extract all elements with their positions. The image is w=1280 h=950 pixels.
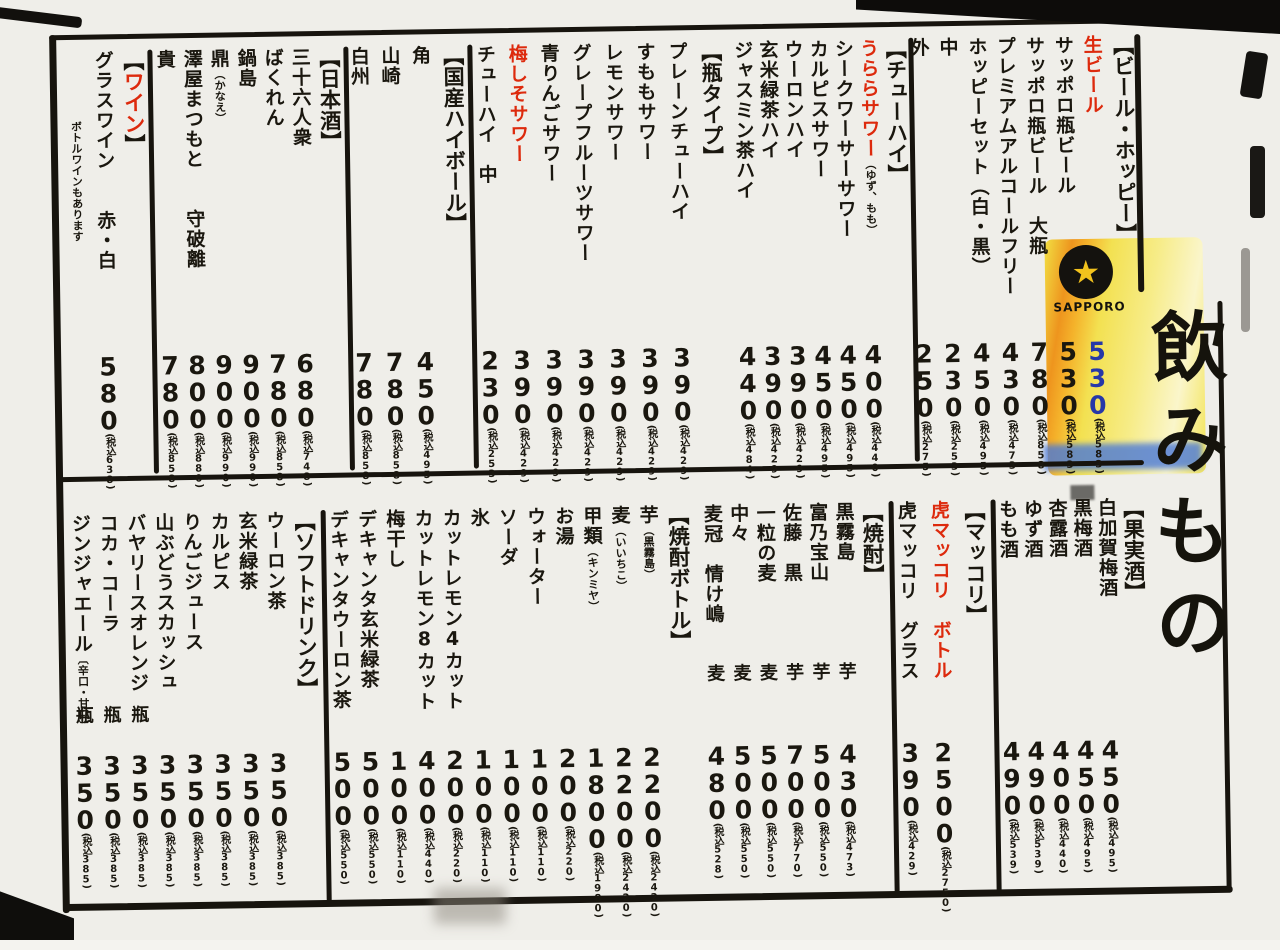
item-pricebox: 500(税込550) bbox=[756, 741, 783, 878]
item-type-marker: 芋 bbox=[837, 662, 855, 680]
item-price: 350 bbox=[97, 751, 127, 832]
item-name: 梅干し bbox=[384, 509, 405, 569]
item-tax-price: (税込539) bbox=[1007, 818, 1019, 873]
item-pricebox: 900(税込990) bbox=[211, 350, 238, 487]
item-tax-price: (税込550) bbox=[366, 828, 378, 883]
section-header-label: 【焼酎ボトル】 bbox=[666, 504, 691, 651]
item-pricebox: 530(税込583) bbox=[1084, 337, 1111, 474]
item-tax-price: (税込429) bbox=[518, 427, 530, 482]
item-price: 500 bbox=[356, 747, 386, 828]
item-price: 230 bbox=[475, 346, 505, 427]
item-tax-price: (税込539) bbox=[1032, 818, 1044, 873]
item-tax-price: (税込2420) bbox=[620, 851, 632, 916]
item-name: デキャンタ玄米緑茶 bbox=[355, 509, 378, 689]
item-tax-price: (税込275) bbox=[920, 420, 932, 475]
item-pricebox: 450(税込495) bbox=[968, 338, 995, 475]
item-pricebox: 780(税込858) bbox=[1026, 338, 1053, 475]
item-name: 中々 bbox=[728, 503, 749, 543]
section-header-label: 【焼酎】 bbox=[860, 501, 884, 585]
item-pricebox: 390(税込429) bbox=[509, 346, 536, 483]
item-price: 390 bbox=[667, 343, 697, 424]
item-pricebox: 2200(税込2420) bbox=[611, 743, 638, 917]
item-type-marker: 瓶 bbox=[101, 705, 119, 723]
item-pricebox: 900(税込990) bbox=[238, 350, 265, 487]
menu-item: 角450(税込495) bbox=[407, 45, 440, 469]
item-name: りんごジュース bbox=[180, 512, 203, 652]
item-name: 青りんごサワー bbox=[538, 43, 561, 183]
scan-artifact bbox=[1250, 146, 1265, 218]
item-name: 一粒の麦 bbox=[754, 503, 776, 583]
menu-item: グラスワイン 赤・白580(税込638) bbox=[89, 50, 122, 474]
item-tax-price: (税込495) bbox=[844, 422, 856, 477]
section-header-label: 【マッコリ】 bbox=[962, 500, 987, 626]
item-type-marker: 瓶 bbox=[74, 706, 92, 724]
item-price: 430 bbox=[833, 740, 863, 821]
section-header-label: 【瓶タイプ】 bbox=[699, 41, 724, 167]
item-tax-price: (税込385) bbox=[80, 833, 92, 888]
item-name: コカ・コーラ bbox=[97, 513, 119, 633]
item-tax-price: (税込473) bbox=[1006, 419, 1018, 474]
item-price: 390 bbox=[896, 739, 926, 820]
item-price: 780 bbox=[1025, 337, 1055, 418]
item-tax-price: (税込550) bbox=[817, 821, 829, 876]
item-price: 490 bbox=[997, 737, 1027, 818]
item-pricebox: 490(税込539) bbox=[998, 737, 1025, 874]
menu-item: カットレモン4カット200(税込220) bbox=[437, 508, 469, 902]
menu-item: 山崎780(税込858) bbox=[376, 46, 409, 470]
item-name: 佐藤 黒 bbox=[780, 502, 802, 582]
item-name: うららサワー（ゆず、もも） bbox=[857, 38, 881, 235]
item-name: 富乃宝山 bbox=[807, 502, 829, 582]
item-name: カットレモン4カット bbox=[440, 508, 464, 711]
section-shochu-bottle: 【焼酎ボトル】芋（黒霧島）2200(税込2420)麦（いいちこ）2200(税込2… bbox=[325, 504, 699, 904]
item-pricebox: 450(税込495) bbox=[412, 347, 439, 484]
item-pricebox: 200(税込220) bbox=[442, 746, 469, 883]
item-price: 350 bbox=[264, 748, 294, 829]
item-tax-price: (税込858) bbox=[166, 432, 178, 487]
menu-item: ボトルワインもあります bbox=[61, 51, 94, 475]
item-price: 350 bbox=[153, 750, 183, 831]
item-price: 100 bbox=[525, 744, 555, 825]
section-header-label: 【果実酒】 bbox=[1121, 497, 1145, 602]
item-price: 350 bbox=[181, 750, 211, 831]
item-tax-price: (税込110) bbox=[394, 828, 406, 883]
item-name: 鍋島 bbox=[235, 48, 256, 88]
item-pricebox: 450(税込495) bbox=[1097, 735, 1124, 872]
item-tax-price: (税込429) bbox=[768, 423, 780, 478]
item-pricebox: 2500(税込2750) bbox=[930, 738, 957, 912]
item-tax-price: (税込858) bbox=[274, 431, 286, 486]
section-header-shochu-bottle: 【焼酎ボトル】 bbox=[662, 504, 698, 898]
item-tax-price: (税込429) bbox=[582, 426, 594, 481]
item-name: ソーダ bbox=[496, 507, 517, 567]
section-header-label: 【ビール・ホッピー】 bbox=[1111, 34, 1137, 244]
item-price: 350 bbox=[70, 752, 100, 833]
item-name: サッポロ瓶ビール bbox=[1052, 35, 1075, 195]
menu-title: 飲みもの bbox=[1144, 307, 1226, 676]
section-header-bin-type: 【瓶タイプ】 bbox=[695, 41, 732, 465]
item-name: 氷 bbox=[468, 507, 489, 527]
item-pricebox: 350(税込385) bbox=[210, 749, 237, 886]
item-pricebox: 780(税込858) bbox=[381, 348, 408, 485]
item-tax-price: (税込770) bbox=[791, 822, 803, 877]
item-pricebox: 500(税込550) bbox=[329, 748, 356, 885]
item-pricebox: 500(税込550) bbox=[357, 747, 384, 884]
item-name: 玄米緑茶ハイ bbox=[757, 40, 779, 160]
item-name: 芋（黒霧島） bbox=[637, 505, 659, 580]
menu-item: コカ・コーラ瓶350(税込385) bbox=[94, 513, 126, 907]
item-pricebox: 450(税込495) bbox=[810, 341, 837, 478]
item-name: 玄米緑茶 bbox=[236, 511, 258, 591]
section-header-makgeolli: 【マッコリ】 bbox=[959, 500, 995, 894]
item-price: 500 bbox=[728, 741, 758, 822]
section-makgeolli: 【マッコリ】虎マッコリ ボトル2500(税込2750)虎マッコリ グラス390(… bbox=[893, 500, 995, 895]
item-tax-price: (税込528) bbox=[712, 823, 724, 878]
item-type-marker: 瓶 bbox=[129, 705, 147, 723]
item-type-marker: 麦 bbox=[705, 664, 723, 682]
item-tax-price: (税込583) bbox=[1093, 418, 1105, 473]
menu-item: ウーロン茶350(税込385) bbox=[261, 511, 293, 905]
item-pricebox: 100(税込110) bbox=[498, 745, 525, 882]
item-tax-price: (税込253) bbox=[948, 420, 960, 475]
item-tax-price: (税込583) bbox=[1064, 418, 1076, 473]
item-name: 白加賀梅酒 bbox=[1095, 498, 1117, 598]
item-pricebox: 350(税込385) bbox=[238, 749, 265, 886]
item-name: バヤリースオレンジ bbox=[125, 513, 148, 693]
item-tax-price: (税込385) bbox=[274, 830, 286, 885]
item-price: 200 bbox=[553, 744, 583, 825]
item-pricebox: 2200(税込2420) bbox=[639, 743, 666, 917]
item-pricebox: 350(税込385) bbox=[182, 750, 209, 887]
item-name: ホッピーセット（白・黒） bbox=[966, 37, 990, 277]
menu-item: 甲類（キンミヤ）1800(税込1980) bbox=[578, 506, 610, 900]
item-tax-price: (税込495) bbox=[1106, 817, 1118, 872]
item-price: 500 bbox=[754, 741, 784, 822]
item-price: 580 bbox=[93, 352, 123, 433]
item-tax-price: (税込550) bbox=[338, 829, 350, 884]
item-price: 530 bbox=[1082, 337, 1112, 418]
item-pricebox: 200(税込220) bbox=[554, 744, 581, 881]
item-pricebox: 390(税込429) bbox=[759, 342, 786, 479]
item-price: 700 bbox=[781, 740, 811, 821]
section-beer-hoppy: 【ビール・ホッピー】生ビール530(税込583)サッポロ瓶ビール530(税込58… bbox=[905, 34, 1144, 462]
section-shochu: 【焼酎】黒霧島芋430(税込473)富乃宝山芋500(税込550)佐藤 黒芋70… bbox=[699, 501, 893, 898]
item-name: カットレモン8カット bbox=[412, 508, 436, 711]
item-type-marker: 麦 bbox=[758, 663, 776, 681]
item-name: ウーロン茶 bbox=[264, 511, 286, 611]
item-pricebox: 350(税込385) bbox=[265, 749, 292, 886]
item-price: 350 bbox=[208, 749, 238, 830]
item-pricebox: 100(税込110) bbox=[385, 747, 412, 884]
menu-item: 青りんごサワー390(税込429) bbox=[535, 43, 568, 467]
item-tax-price: (税込748) bbox=[301, 430, 313, 485]
item-name: 角 bbox=[409, 45, 430, 65]
item-name: ウーロンハイ bbox=[782, 39, 804, 159]
item-tax-price: (税込495) bbox=[1081, 817, 1093, 872]
item-pricebox: 480(税込528) bbox=[703, 742, 730, 879]
item-name: ボトルワインもあります bbox=[70, 121, 84, 242]
item-type-marker: 芋 bbox=[810, 662, 828, 680]
item-price: 2500 bbox=[929, 738, 960, 846]
item-price: 450 bbox=[411, 347, 441, 428]
item-price: 800 bbox=[182, 351, 212, 432]
item-pricebox: 390(税込429) bbox=[785, 341, 812, 478]
item-type-marker: 麦 bbox=[731, 663, 749, 681]
menu-item: 白州780(税込858) bbox=[345, 46, 378, 470]
item-name: 中 bbox=[937, 37, 958, 57]
menu-item: ソーダ100(税込110) bbox=[494, 507, 526, 901]
section-soft-drink: 【ソフトドリンク】ウーロン茶350(税込385)玄米緑茶350(税込385)カル… bbox=[67, 510, 325, 908]
item-pricebox: 400(税込440) bbox=[1048, 736, 1075, 873]
item-name: カルピス bbox=[208, 511, 230, 591]
item-tax-price: (税込990) bbox=[220, 431, 232, 486]
item-tax-price: (税込2750) bbox=[939, 846, 951, 911]
item-tax-price: (税込385) bbox=[246, 830, 258, 885]
section-header-label: 【チューハイ】 bbox=[883, 38, 908, 185]
item-name: ゆず酒 bbox=[1021, 499, 1042, 559]
item-name: 黒梅酒 bbox=[1071, 498, 1092, 558]
section-header-shochu: 【焼酎】 bbox=[856, 501, 892, 895]
item-name: 甲類（キンミヤ） bbox=[581, 506, 603, 612]
section-header-label: 【ソフトドリンク】 bbox=[292, 510, 318, 699]
item-tax-price: (税込1980) bbox=[592, 852, 604, 917]
menu-item: カルピス350(税込385) bbox=[205, 511, 237, 905]
item-name: チューハイ 中 bbox=[474, 44, 497, 184]
item-pricebox: 230(税込253) bbox=[477, 346, 504, 483]
item-tax-price: (税込2420) bbox=[648, 851, 660, 916]
item-pricebox: 450(税込495) bbox=[1072, 736, 1099, 873]
item-tax-price: (税込495) bbox=[977, 420, 989, 475]
item-tax-price: (税込429) bbox=[646, 425, 658, 480]
item-pricebox: 400(税込440) bbox=[414, 746, 441, 883]
item-price: 350 bbox=[236, 749, 266, 830]
item-tax-price: (税込429) bbox=[906, 820, 918, 875]
item-price: 1800 bbox=[581, 744, 612, 852]
item-name: 生ビール bbox=[1081, 35, 1103, 115]
item-pricebox: 440(税込484) bbox=[734, 342, 761, 479]
item-type-marker: 芋 bbox=[784, 662, 802, 680]
menu-item: チューハイ 中230(税込253) bbox=[471, 44, 504, 468]
item-name: レモンサワー bbox=[602, 42, 624, 162]
item-price: 780 bbox=[349, 348, 379, 429]
item-tax-price: (税込253) bbox=[486, 427, 498, 482]
item-tax-price: (税込429) bbox=[550, 426, 562, 481]
item-price: 500 bbox=[807, 740, 837, 821]
item-pricebox: 350(税込385) bbox=[71, 752, 98, 889]
item-pricebox: 390(税込429) bbox=[637, 344, 664, 481]
section-nihonshu: 【日本酒】三十六人衆680(税込748)ばくれん780(税込858)鍋島900(… bbox=[151, 47, 350, 474]
item-name: サッポロ瓶ビール 大瓶 bbox=[1023, 36, 1047, 256]
item-price: 390 bbox=[571, 345, 601, 426]
item-price: 350 bbox=[125, 751, 155, 832]
section-bin-type: 【瓶タイプ】プレーンチューハイ390(税込429)すももサワー390(税込429… bbox=[471, 41, 732, 469]
item-price: 2200 bbox=[637, 743, 668, 851]
menu-item: 玄米緑茶350(税込385) bbox=[233, 511, 265, 905]
item-price: 390 bbox=[539, 345, 569, 426]
item-tax-price: (税込429) bbox=[678, 424, 690, 479]
item-tax-price: (税込385) bbox=[135, 832, 147, 887]
item-price: 100 bbox=[496, 745, 526, 826]
item-price: 780 bbox=[380, 348, 410, 429]
section-header-label: 【国産ハイボール】 bbox=[441, 45, 467, 234]
item-tax-price: (税込385) bbox=[163, 831, 175, 886]
item-pricebox: 430(税込473) bbox=[835, 740, 862, 877]
item-name: デキャンタウーロン茶 bbox=[327, 510, 351, 710]
item-pricebox: 1800(税込1980) bbox=[582, 744, 609, 918]
item-pricebox: 800(税込880) bbox=[184, 351, 211, 488]
section-kokusan-highball: 【国産ハイボール】角450(税込495)山崎780(税込858)白州780(税込… bbox=[345, 45, 474, 471]
section-chuhai: 【チューハイ】うららサワー（ゆず、もも）400(税込440)シークワーサーサワー… bbox=[729, 38, 916, 465]
menu-item: デキャンタウーロン茶500(税込550) bbox=[325, 510, 357, 904]
item-price: 480 bbox=[702, 742, 732, 823]
item-price: 200 bbox=[440, 746, 470, 827]
item-tax-price: (税込550) bbox=[738, 822, 750, 877]
item-pricebox: 390(税込429) bbox=[897, 739, 924, 876]
item-pricebox: 500(税込550) bbox=[729, 741, 756, 878]
item-pricebox: 530(税込583) bbox=[1055, 337, 1082, 474]
item-pricebox: 680(税込748) bbox=[292, 349, 319, 486]
item-tax-price: (税込440) bbox=[869, 421, 881, 476]
item-pricebox: 450(税込495) bbox=[835, 341, 862, 478]
menu-item: 梅しそサワー390(税込429) bbox=[503, 44, 536, 468]
item-name: すももサワー bbox=[634, 42, 656, 162]
item-name: プレーンチューハイ bbox=[666, 41, 689, 221]
item-pricebox: 390(税込429) bbox=[669, 343, 696, 480]
item-name: 澤屋まつもと 守破離 bbox=[181, 49, 205, 269]
item-name: お湯 bbox=[553, 506, 574, 546]
item-tax-price: (税込429) bbox=[614, 425, 626, 480]
item-name: 黒霧島 bbox=[833, 502, 854, 562]
item-name: 梅しそサワー bbox=[506, 44, 528, 164]
item-name: カルピスサワー bbox=[807, 39, 830, 179]
item-price: 530 bbox=[1053, 337, 1083, 418]
item-pricebox: 700(税込770) bbox=[782, 740, 809, 877]
item-pricebox: 580(税込638) bbox=[95, 352, 122, 489]
item-tax-price: (税込385) bbox=[191, 831, 203, 886]
item-pricebox: 350(税込385) bbox=[99, 751, 126, 888]
item-name: 麦冠 情け嶋 bbox=[701, 504, 723, 624]
item-price: 390 bbox=[507, 346, 537, 427]
item-tax-price: (税込858) bbox=[390, 429, 402, 484]
item-price: 900 bbox=[236, 350, 266, 431]
item-name: 山ぶどうスカッシュ bbox=[153, 512, 176, 692]
menu-item: デキャンタ玄米緑茶500(税込550) bbox=[353, 509, 385, 903]
item-tax-price: (税込858) bbox=[1035, 419, 1047, 474]
item-name: ジャスミン茶ハイ bbox=[732, 40, 755, 200]
item-tax-price: (税込110) bbox=[507, 826, 519, 881]
item-price: 230 bbox=[938, 339, 968, 420]
menu-item: プレーンチューハイ390(税込429) bbox=[663, 41, 696, 465]
menu-item: 虎マッコリ ボトル2500(税込2750) bbox=[926, 500, 958, 894]
item-name: 三十六人衆 bbox=[289, 47, 311, 147]
menu-item: りんごジュース350(税込385) bbox=[178, 512, 210, 906]
menu-item: ジンジャエール〔辛口・甘口〕瓶350(税込385) bbox=[67, 514, 99, 908]
item-tax-price: (税込385) bbox=[219, 830, 231, 885]
item-name: ばくれん bbox=[262, 48, 284, 128]
item-tax-price: (税込110) bbox=[535, 826, 547, 881]
item-price: 450 bbox=[967, 338, 997, 419]
item-tax-price: (税込110) bbox=[479, 826, 491, 881]
item-pricebox: 390(税込429) bbox=[573, 345, 600, 482]
item-pricebox: 780(税込858) bbox=[351, 348, 378, 485]
menu-item: 山ぶどうスカッシュ350(税込385) bbox=[150, 512, 182, 906]
item-pricebox: 430(税込473) bbox=[997, 338, 1024, 475]
item-price: 780 bbox=[155, 351, 185, 432]
menu-item: ウォーター100(税込110) bbox=[522, 506, 554, 900]
item-price: 390 bbox=[603, 344, 633, 425]
item-tax-price: (税込858) bbox=[360, 429, 372, 484]
item-pricebox: 390(税込429) bbox=[541, 345, 568, 482]
menu-item: 氷100(税込110) bbox=[465, 507, 497, 901]
item-pricebox: 100(税込110) bbox=[526, 744, 553, 881]
item-tax-price: (税込440) bbox=[422, 827, 434, 882]
menu-item: お湯200(税込220) bbox=[550, 506, 582, 900]
item-price: 430 bbox=[996, 338, 1026, 419]
item-price: 680 bbox=[290, 349, 320, 430]
item-tax-price: (税込484) bbox=[743, 423, 755, 478]
menu-board: ★ SAPPORO 飲みもの 【ビール・ホッピー】生ビール530(税込583)サ… bbox=[0, 0, 1280, 950]
scanned-menu-page: ★ SAPPORO 飲みもの 【ビール・ホッピー】生ビール530(税込583)サ… bbox=[0, 0, 1280, 940]
section-header-label: 【ワイン】 bbox=[121, 50, 145, 155]
menu-item: 梅干し100(税込110) bbox=[381, 509, 413, 903]
item-tax-price: (税込495) bbox=[819, 422, 831, 477]
item-price: 100 bbox=[384, 747, 414, 828]
item-pricebox: 100(税込110) bbox=[470, 745, 497, 882]
item-name: 麦（いいちこ） bbox=[609, 505, 631, 591]
item-tax-price: (税込495) bbox=[421, 428, 433, 483]
item-tax-price: (税込440) bbox=[1056, 817, 1068, 872]
item-pricebox: 230(税込253) bbox=[940, 339, 967, 476]
item-pricebox: 780(税込858) bbox=[157, 351, 184, 488]
item-pricebox: 400(税込440) bbox=[860, 340, 887, 477]
item-pricebox: 490(税込539) bbox=[1023, 737, 1050, 874]
item-pricebox: 390(税込429) bbox=[605, 344, 632, 481]
item-pricebox: 780(税込858) bbox=[265, 349, 292, 486]
item-name: シークワーサーサワー bbox=[832, 39, 856, 239]
item-name: 白州 bbox=[348, 46, 369, 86]
section-wine: 【ワイン】グラスワイン 赤・白580(税込638)ボトルワインもあります bbox=[61, 50, 154, 475]
item-pricebox: 350(税込385) bbox=[154, 750, 181, 887]
item-name: グラスワイン 赤・白 bbox=[92, 50, 116, 270]
item-price: 500 bbox=[328, 747, 358, 828]
section-header-soft-drink: 【ソフトドリンク】 bbox=[289, 510, 325, 904]
item-name: 虎マッコリ ボトル bbox=[928, 500, 951, 680]
item-name: 外 bbox=[908, 37, 929, 57]
item-pricebox: 500(税込550) bbox=[808, 740, 835, 877]
menu-item: グレープフルーツサワー390(税込429) bbox=[567, 43, 600, 467]
item-tax-price: (税込638) bbox=[104, 433, 116, 488]
item-pricebox: 350(税込385) bbox=[127, 751, 154, 888]
item-name: 杏露酒 bbox=[1046, 498, 1067, 558]
menu-item: バヤリースオレンジ瓶350(税込385) bbox=[122, 513, 154, 907]
menu-item: カットレモン8カット400(税込440) bbox=[409, 508, 441, 902]
item-name: 虎マッコリ グラス bbox=[895, 501, 918, 681]
menu-item: すももサワー390(税込429) bbox=[631, 42, 664, 466]
section-header-label: 【日本酒】 bbox=[317, 47, 341, 152]
item-tax-price: (税込220) bbox=[450, 827, 462, 882]
item-price: 100 bbox=[468, 745, 498, 826]
item-tax-price: (税込880) bbox=[193, 432, 205, 487]
scan-artifact bbox=[1241, 248, 1250, 332]
item-name: ジンジャエール〔辛口・甘口〕 bbox=[69, 514, 93, 731]
item-tax-price: (税込385) bbox=[108, 832, 120, 887]
item-tax-price: (税込550) bbox=[764, 822, 776, 877]
item-tax-price: (税込473) bbox=[843, 821, 855, 876]
scan-artifact bbox=[434, 888, 506, 924]
item-price: 900 bbox=[209, 350, 239, 431]
item-price: 400 bbox=[412, 746, 442, 827]
item-name: 鼎（かなえ） bbox=[208, 48, 230, 123]
